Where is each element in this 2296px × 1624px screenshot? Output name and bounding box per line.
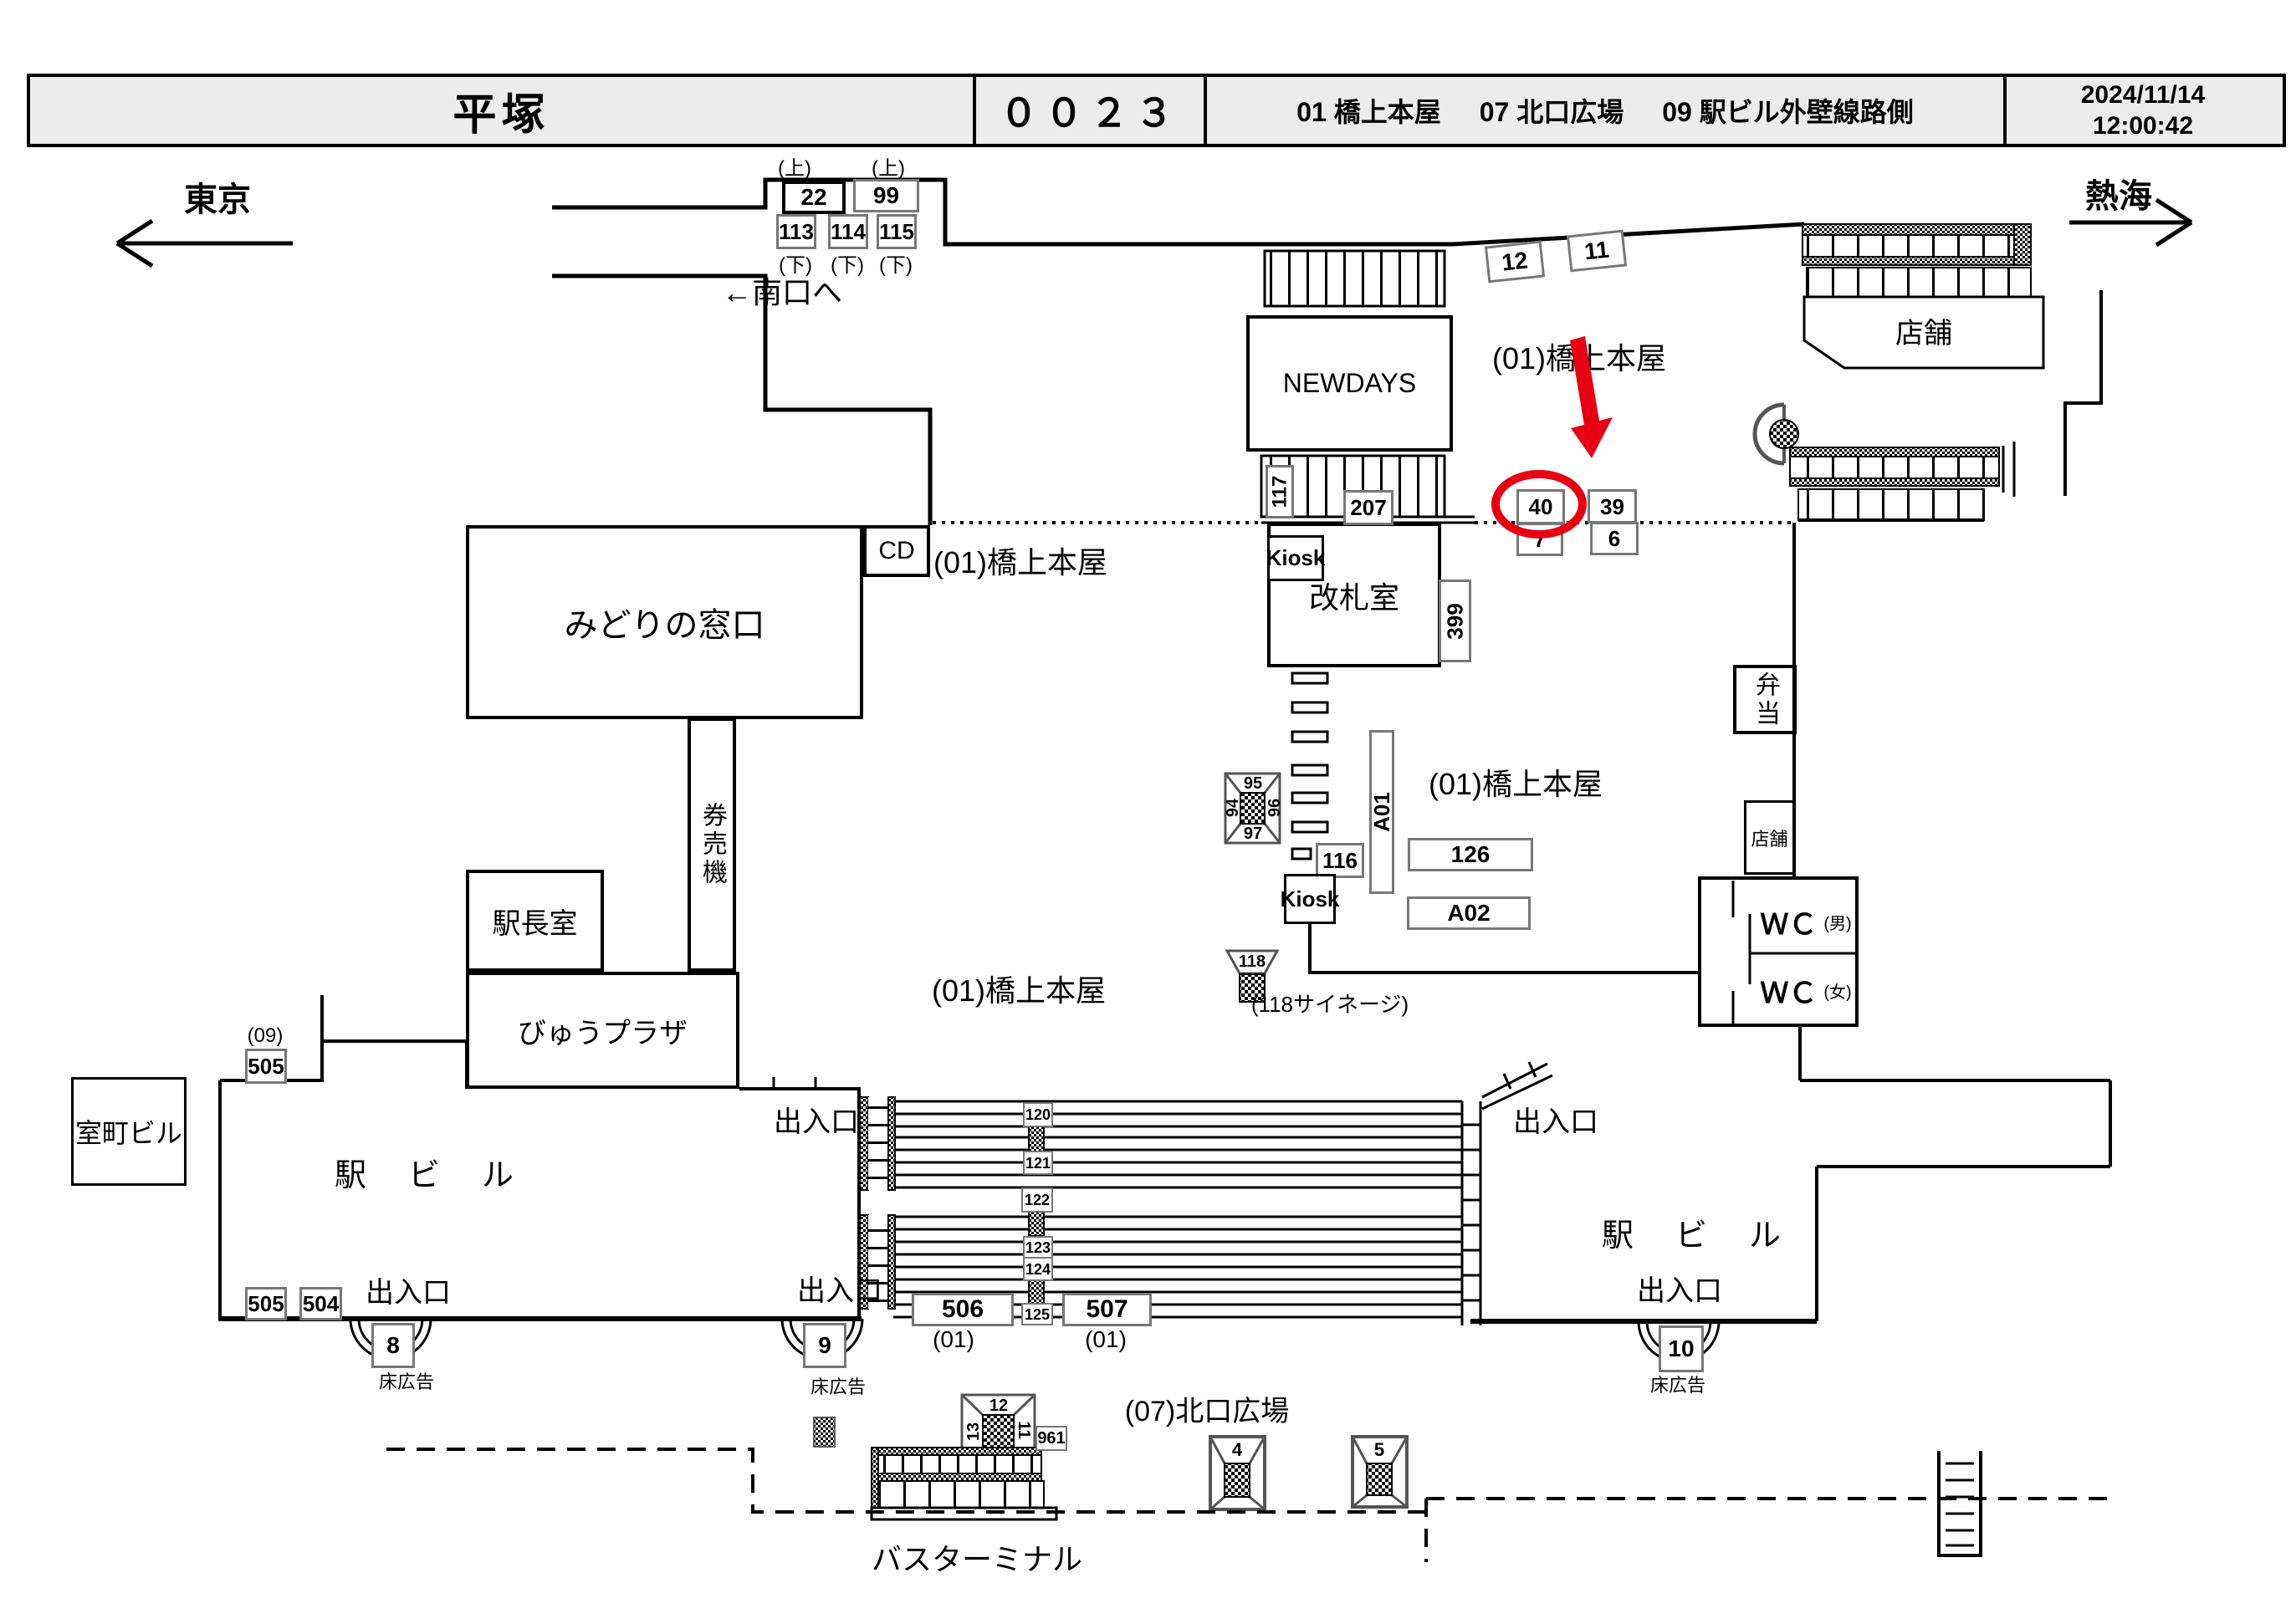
bridge-label-4: (01)橋上本屋 [927, 972, 1111, 1005]
walkway-upper-lines [893, 1101, 1462, 1187]
room-muromachi: 室町ビル [71, 1077, 187, 1186]
ad-spot-114[interactable]: 114 [828, 214, 868, 249]
room-cd: CD [863, 525, 930, 577]
escalator-upper-right [1803, 224, 2031, 297]
signage-118-label: (118サイネージ) [1259, 990, 1401, 1015]
ad-spot-115[interactable]: 115 [877, 214, 917, 249]
ad-spot-94[interactable]: 94 [1222, 795, 1244, 820]
ad-spot-99[interactable]: 99 [853, 179, 919, 212]
room-kenbaiki: 券売機 [688, 718, 736, 972]
wc-female-label: ＷＣ [1760, 970, 1817, 1011]
ekibiru-right-label: 駅 ビ ル [1618, 1214, 1769, 1249]
wc-male-label: ＷＣ [1760, 901, 1817, 942]
stairs-upper-newdays [1265, 251, 1445, 306]
down-label-115: (下) [875, 251, 917, 274]
ad-spot-39[interactable]: 39 [1588, 489, 1637, 523]
exit-label-5: 出入口 [1629, 1273, 1730, 1303]
exit-label-1: 出入口 [358, 1274, 458, 1305]
ekibiru-left-label: 駅 ビ ル [351, 1154, 502, 1189]
ladder-walkway-end [1462, 1101, 1480, 1325]
ad-spot-10[interactable]: 10 [1659, 1325, 1704, 1372]
time-label: 12:00:42 [2093, 110, 2193, 142]
ad-spot-117[interactable]: 117 [1266, 465, 1294, 518]
room-wc: ＷＣ (男) ＷＣ (女) [1698, 876, 1859, 1027]
escalator-lower-right [1790, 447, 1999, 520]
ad-spot-a01[interactable]: A01 [1369, 730, 1394, 894]
ad-spot-120[interactable]: 120 [1023, 1102, 1053, 1127]
spot-117-label: 117 [1270, 476, 1290, 508]
down-label-114: (下) [826, 251, 868, 274]
bento-label: 弁当 [1746, 672, 1783, 728]
category-09: 09 駅ビル外壁線路側 [1662, 91, 1914, 130]
bus-pillar-small [814, 1417, 835, 1447]
ad-spot-12-bus[interactable]: 12 [986, 1397, 1011, 1415]
ad-spot-a02[interactable]: A02 [1407, 896, 1531, 930]
ad-spot-7[interactable]: 7 [1516, 523, 1563, 556]
wall-lower-right [1794, 520, 1984, 876]
ad-spot-8[interactable]: 8 [371, 1323, 415, 1368]
ad-spot-11-top[interactable]: 11 [1567, 230, 1627, 273]
station-map-page: 平塚 ００２３ 01 橋上本屋 07 北口広場 09 駅ビル外壁線路側 2024… [0, 0, 2296, 1624]
floor-ad-label-9: 床広告 [805, 1375, 872, 1397]
ad-spot-97[interactable]: 97 [1239, 825, 1267, 843]
up-label-22: (上) [770, 154, 820, 177]
stairs-bottom-right [1939, 1451, 1981, 1555]
ad-spot-40[interactable]: 40 [1516, 489, 1565, 524]
room-newdays: NEWDAYS [1246, 315, 1453, 452]
up-label-99: (上) [863, 154, 913, 177]
bridge-label-3: (01)橋上本屋 [1424, 765, 1608, 799]
bridge-label-2: (01)橋上本屋 [928, 544, 1112, 577]
wall-below-wc [1800, 1027, 2110, 1321]
wc-female-sub: (女) [1823, 978, 1851, 1003]
ad-spot-123[interactable]: 123 [1023, 1236, 1053, 1259]
room-shop-small: 店舗 [1744, 800, 1795, 875]
spot-a01-label: A01 [1371, 792, 1393, 832]
ad-spot-95[interactable]: 95 [1239, 774, 1267, 793]
date-label: 2024/11/14 [2081, 79, 2206, 111]
wall-bridge-south [1310, 924, 1698, 973]
ad-spot-505-top[interactable]: 505 [245, 1049, 287, 1084]
direction-atami: 熱海 [2073, 172, 2165, 214]
ad-spot-961[interactable]: 961 [1036, 1426, 1067, 1451]
wc-male-sub: (男) [1823, 910, 1851, 934]
station-name: 平塚 [30, 77, 973, 144]
ad-spot-124[interactable]: 124 [1023, 1257, 1053, 1281]
bus-terminal-label: バスターミナル [868, 1540, 1086, 1574]
ad-spot-399[interactable]: 399 [1439, 580, 1471, 662]
ad-spot-4[interactable]: 4 [1225, 1440, 1250, 1460]
south-exit-label: ←南口へ [694, 272, 870, 309]
floorplan-lines [0, 0, 2296, 1624]
ad-spot-207[interactable]: 207 [1343, 490, 1393, 525]
ad-spot-121[interactable]: 121 [1023, 1151, 1053, 1175]
ad-spot-122[interactable]: 122 [1021, 1187, 1053, 1213]
ad-spot-504[interactable]: 504 [299, 1287, 342, 1320]
board-code: ００２３ [973, 77, 1204, 144]
escalator-bracket [2003, 442, 2014, 497]
ad-spot-96[interactable]: 96 [1262, 795, 1284, 820]
exit-label-2: 出入口 [766, 1104, 867, 1134]
ad-spot-125[interactable]: 125 [1021, 1303, 1053, 1325]
room-view-plaza: びゅうプラザ [466, 972, 739, 1089]
ad-spot-505-bottom[interactable]: 505 [245, 1287, 287, 1320]
room-midori: みどりの窓口 [466, 525, 863, 719]
ad-spot-12-top[interactable]: 12 [1485, 241, 1545, 283]
bridge-label-1: (01)橋上本屋 [1487, 340, 1671, 373]
ad-spot-507[interactable]: 507 [1062, 1293, 1152, 1326]
datetime: 2024/11/14 12:00:42 [2003, 77, 2279, 144]
direction-tokyo: 東京 [163, 176, 272, 217]
room-bento: 弁当 [1733, 665, 1797, 734]
paren09-label: (09) [244, 1025, 286, 1047]
ad-spot-11-bus[interactable]: 11 [1012, 1419, 1036, 1441]
exit-label-3: 出入口 [790, 1273, 890, 1303]
floor-ad-label-8: 床広告 [373, 1370, 440, 1392]
ad-spot-118[interactable]: 118 [1235, 952, 1270, 972]
room-kiosk-1: Kiosk [1267, 535, 1324, 581]
north-plaza-label: (07)北口広場 [1102, 1392, 1312, 1424]
header-bar: 平塚 ００２３ 01 橋上本屋 07 北口広場 09 駅ビル外壁線路側 2024… [27, 74, 2286, 147]
ad-spot-506[interactable]: 506 [912, 1293, 1014, 1326]
floor-ad-label-10: 床広告 [1644, 1373, 1711, 1395]
ad-spot-9[interactable]: 9 [803, 1323, 846, 1368]
category-01: 01 橋上本屋 [1296, 91, 1441, 130]
ad-spot-116[interactable]: 116 [1316, 843, 1364, 878]
category-list: 01 橋上本屋 07 北口広場 09 駅ビル外壁線路側 [1204, 77, 2003, 144]
kenbaiki-label: 券売機 [693, 802, 730, 887]
paren01-506: (01) [927, 1326, 980, 1353]
shop-label-upper: 店舗 [1857, 311, 1991, 350]
ad-spot-13-bus[interactable]: 13 [962, 1421, 985, 1443]
ad-spot-126[interactable]: 126 [1408, 838, 1533, 871]
spot-399-label: 399 [1445, 603, 1466, 639]
paren01-507: (01) [1079, 1326, 1133, 1353]
wall-right-upper [2065, 290, 2101, 496]
down-label-113: (下) [775, 251, 816, 274]
category-07: 07 北口広場 [1480, 91, 1624, 130]
ad-spot-22[interactable]: 22 [782, 181, 846, 214]
arrow-to-tokyo [117, 221, 293, 266]
ad-spot-113[interactable]: 113 [776, 214, 816, 249]
bus-escalator [872, 1448, 1056, 1519]
ticket-gates [1292, 673, 1327, 859]
exit-label-4: 出入口 [1506, 1104, 1606, 1134]
ad-spot-5[interactable]: 5 [1367, 1440, 1392, 1460]
room-ekicho: 駅長室 [466, 870, 604, 972]
room-kiosk-2: Kiosk [1284, 874, 1336, 924]
ad-spot-6[interactable]: 6 [1590, 522, 1639, 555]
